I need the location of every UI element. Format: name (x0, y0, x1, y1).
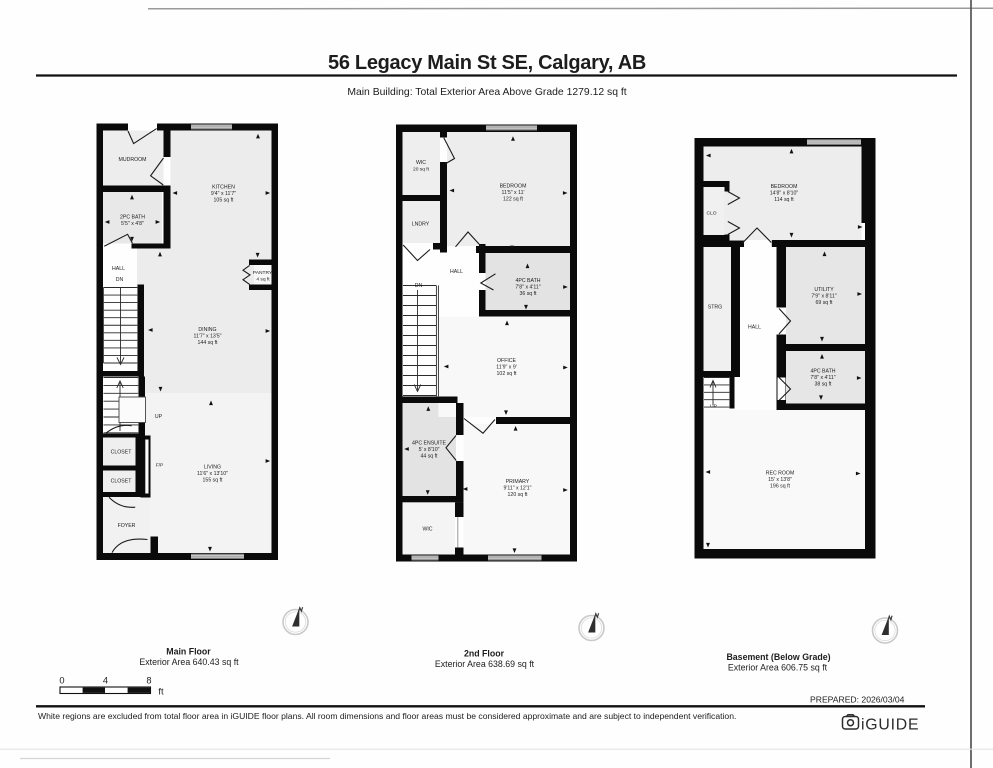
svg-text:UP: UP (155, 414, 163, 420)
svg-text:11'6" x 13'10": 11'6" x 13'10" (197, 471, 228, 477)
svg-text:56 Legacy Main St SE, Calgary,: 56 Legacy Main St SE, Calgary, AB (328, 52, 646, 74)
svg-text:DN: DN (415, 283, 423, 289)
svg-text:120 sq ft: 120 sq ft (508, 492, 528, 498)
svg-text:MUDROOM: MUDROOM (119, 157, 147, 163)
svg-text:7'8" x 4'11": 7'8" x 4'11" (515, 285, 540, 291)
svg-text:11'5" x 11': 11'5" x 11' (502, 190, 525, 196)
svg-text:DINING: DINING (198, 327, 216, 333)
svg-text:Main Floor: Main Floor (166, 647, 211, 657)
svg-text:9'4" x 11'7": 9'4" x 11'7" (211, 191, 236, 197)
svg-text:4PC BATH: 4PC BATH (516, 278, 541, 284)
svg-text:4: 4 (103, 676, 108, 686)
svg-text:8: 8 (146, 676, 151, 686)
svg-text:Exterior Area 640.43 sq ft: Exterior Area 640.43 sq ft (139, 657, 239, 667)
svg-text:ft: ft (158, 687, 164, 697)
svg-text:LIVING: LIVING (204, 465, 221, 471)
svg-text:44 sq ft: 44 sq ft (420, 454, 438, 460)
svg-text:WIC: WIC (422, 527, 432, 533)
svg-text:5'5" x 4'8": 5'5" x 4'8" (121, 221, 144, 227)
svg-text:155 sq ft: 155 sq ft (203, 478, 223, 484)
svg-text:105 sq ft: 105 sq ft (214, 198, 234, 204)
svg-text:7'9" x 8'11": 7'9" x 8'11" (811, 294, 836, 300)
svg-text:KITCHEN: KITCHEN (212, 185, 235, 191)
svg-text:White regions are excluded fro: White regions are excluded from total fl… (38, 711, 736, 721)
svg-text:Exterior Area 638.69 sq ft: Exterior Area 638.69 sq ft (435, 659, 535, 669)
svg-text:PANTRY: PANTRY (253, 270, 273, 276)
svg-text:HALL: HALL (748, 325, 761, 331)
svg-text:PRIMARY: PRIMARY (506, 479, 530, 485)
svg-text:UTILITY: UTILITY (814, 287, 834, 293)
svg-text:11'7" x 13'5": 11'7" x 13'5" (193, 334, 221, 340)
svg-text:REC ROOM: REC ROOM (766, 471, 795, 477)
svg-text:11'9" x 9': 11'9" x 9' (496, 365, 516, 371)
svg-text:STRG: STRG (708, 305, 722, 311)
svg-text:Main Building: Total Exterior: Main Building: Total Exterior Area Above… (347, 87, 626, 98)
svg-text:4 sq ft: 4 sq ft (256, 277, 270, 283)
svg-text:OFFICE: OFFICE (497, 358, 517, 364)
svg-text:144 sq ft: 144 sq ft (198, 340, 218, 346)
svg-text:FOYER: FOYER (118, 523, 136, 529)
svg-text:9'11" x 12'1": 9'11" x 12'1" (503, 486, 531, 492)
svg-text:2PC BATH: 2PC BATH (120, 215, 145, 221)
svg-text:CLOSET: CLOSET (111, 479, 133, 485)
svg-text:DN: DN (116, 277, 124, 283)
svg-text:0: 0 (59, 676, 64, 686)
svg-text:Basement (Below Grade): Basement (Below Grade) (726, 652, 830, 662)
svg-text:4PC BATH: 4PC BATH (811, 369, 836, 375)
svg-text:36 sq ft: 36 sq ft (519, 291, 537, 297)
svg-text:38 sq ft: 38 sq ft (814, 382, 832, 388)
svg-text:5' x 8'10": 5' x 8'10" (419, 447, 440, 453)
svg-text:122 sq ft: 122 sq ft (503, 197, 523, 203)
svg-text:iGUIDE: iGUIDE (861, 717, 919, 734)
svg-text:BEDROOM: BEDROOM (500, 184, 527, 190)
svg-text:BEDROOM: BEDROOM (771, 184, 798, 190)
svg-text:14'8" x 8'10": 14'8" x 8'10" (770, 191, 799, 197)
svg-text:4PC ENSUITE: 4PC ENSUITE (412, 441, 447, 447)
svg-text:WIC: WIC (416, 160, 426, 166)
svg-text:F/P: F/P (156, 463, 164, 469)
svg-text:196 sq ft: 196 sq ft (770, 484, 790, 490)
svg-text:PREPARED: 2026/03/04: PREPARED: 2026/03/04 (810, 695, 905, 705)
svg-text:20 sq ft: 20 sq ft (413, 167, 430, 173)
svg-text:HALL: HALL (450, 269, 463, 275)
svg-text:114 sq ft: 114 sq ft (774, 197, 794, 203)
svg-text:Exterior Area 606.75 sq ft: Exterior Area 606.75 sq ft (728, 663, 828, 673)
svg-text:HALL: HALL (112, 266, 125, 272)
svg-text:UP: UP (710, 404, 717, 410)
svg-text:CLOSET: CLOSET (111, 450, 133, 456)
svg-text:LNDRY: LNDRY (412, 222, 430, 228)
svg-text:CLO: CLO (706, 211, 716, 217)
svg-text:15' x 13'8": 15' x 13'8" (768, 477, 792, 483)
svg-text:102 sq ft: 102 sq ft (497, 371, 517, 377)
svg-text:2nd Floor: 2nd Floor (464, 649, 505, 659)
svg-text:69 sq ft: 69 sq ft (815, 300, 833, 306)
svg-text:7'8" x 4'11": 7'8" x 4'11" (810, 375, 835, 381)
